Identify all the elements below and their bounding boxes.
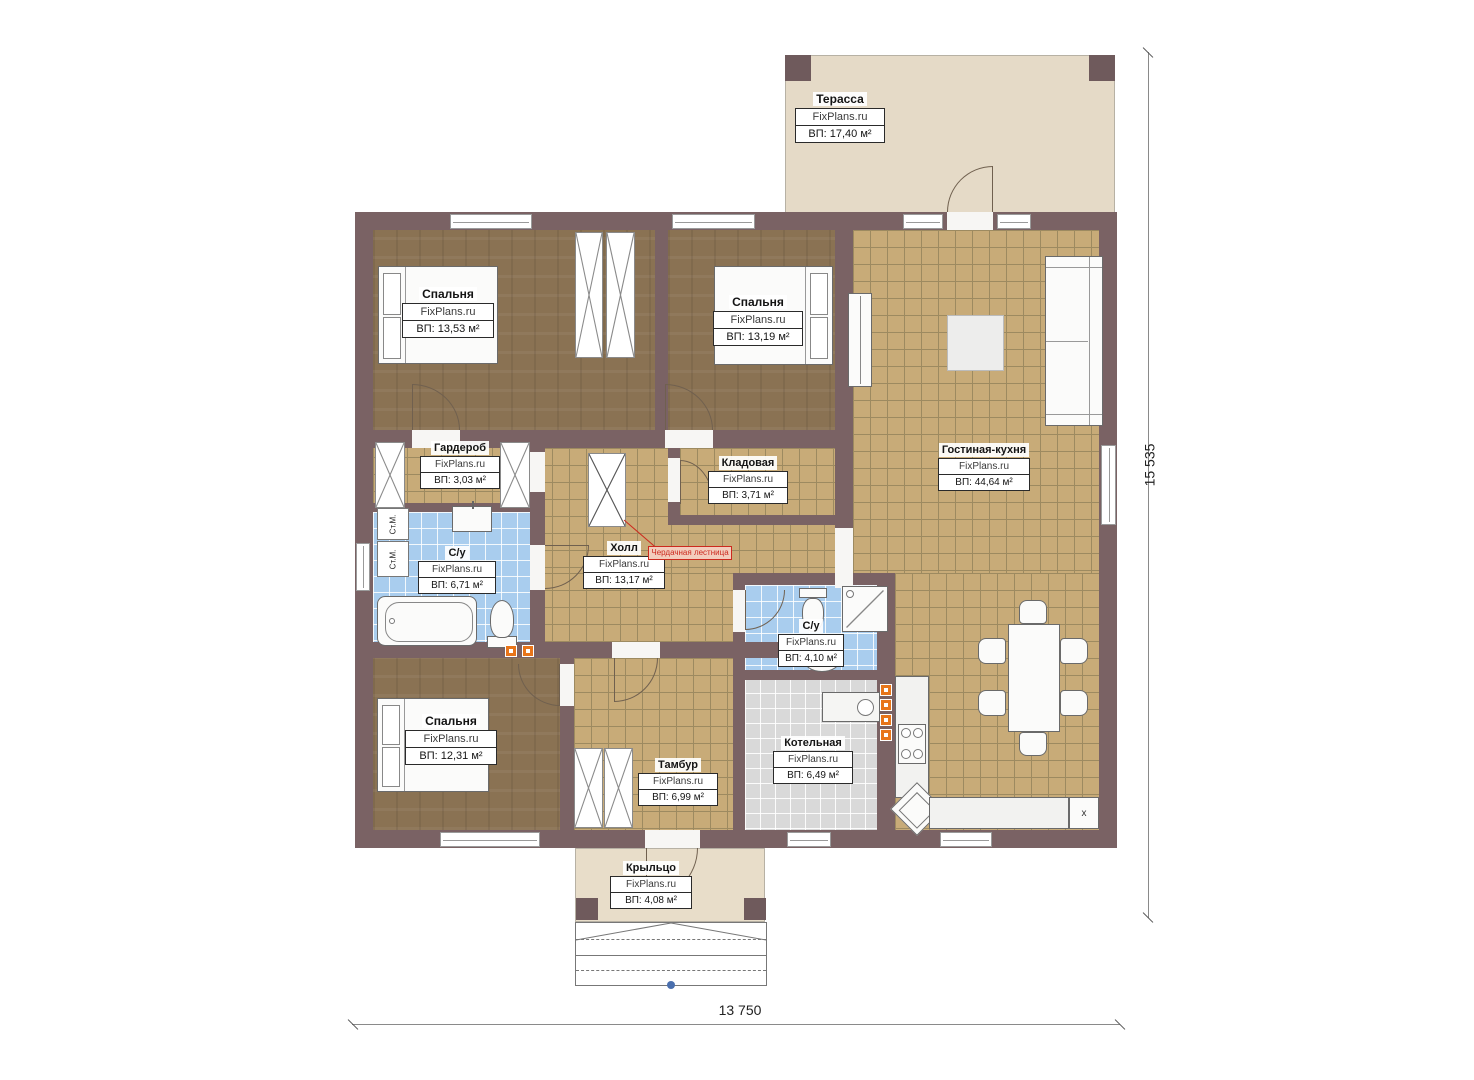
- brand-watermark: FixPlans.ru: [639, 774, 717, 790]
- sofa: [1045, 256, 1103, 426]
- pillow: [382, 705, 400, 745]
- dining-chair: [1060, 690, 1088, 716]
- opening-bath2-door: [733, 590, 745, 632]
- washing-machine-2: Ст.М.: [377, 541, 409, 577]
- riser-marker: [880, 729, 892, 741]
- brand-watermark: FixPlans.ru: [796, 109, 884, 126]
- attic-ladder-shaft: [588, 453, 626, 527]
- room-name: С/у: [445, 546, 468, 560]
- closet-bedroom1-a: [575, 232, 603, 358]
- room-name: Спальня: [729, 295, 787, 309]
- step-line: [576, 955, 766, 956]
- brand-watermark: FixPlans.ru: [714, 312, 802, 329]
- washer-label: Ст.М.: [388, 514, 397, 534]
- room-label-bath1: С/у FixPlans.ru ВП: 6,71 м²: [418, 543, 496, 594]
- closet-bedroom1-b: [606, 232, 635, 358]
- brand-watermark: FixPlans.ru: [406, 731, 496, 748]
- sink-bath1: [452, 506, 492, 532]
- opening-hall-living: [835, 528, 853, 588]
- brand-watermark: FixPlans.ru: [611, 877, 691, 893]
- room-area: ВП: 6,99 м²: [639, 790, 717, 805]
- opening-bath1-door: [530, 545, 545, 590]
- room-name: Гостиная-кухня: [939, 443, 1029, 457]
- window-bedroom3: [440, 832, 540, 847]
- room-name: Холл: [607, 541, 641, 555]
- floor-plan: x Ст.М. Ст.М. Чердачная лестница Тер: [0, 0, 1474, 1080]
- room-area: ВП: 3,03 м²: [421, 473, 499, 488]
- room-area: ВП: 6,49 м²: [774, 768, 852, 783]
- boiler-circle: [857, 699, 874, 716]
- dimension-height-label: 15 535: [1104, 420, 1194, 510]
- room-info-box: FixPlans.ru ВП: 4,10 м²: [778, 634, 844, 667]
- room-area: ВП: 3,71 м²: [709, 488, 787, 503]
- room-label-porch: Крыльцо FixPlans.ru ВП: 4,08 м²: [610, 858, 692, 909]
- pillow: [382, 747, 400, 787]
- room-info-box: FixPlans.ru ВП: 17,40 м²: [795, 108, 885, 143]
- room-area: ВП: 12,31 м²: [406, 748, 496, 764]
- room-info-box: FixPlans.ru ВП: 13,53 м²: [402, 303, 494, 338]
- room-area: ВП: 17,40 м²: [796, 126, 884, 142]
- boiler-unit: [822, 692, 880, 722]
- room-info-box: FixPlans.ru ВП: 6,99 м²: [638, 773, 718, 806]
- room-label-tambour: Тамбур FixPlans.ru ВП: 6,99 м²: [638, 755, 718, 806]
- burner: [901, 728, 911, 738]
- brand-watermark: FixPlans.ru: [419, 562, 495, 578]
- burner: [901, 749, 911, 759]
- toilet-bath2-tank: [799, 588, 827, 598]
- dining-chair: [1060, 638, 1088, 664]
- riser-marker: [505, 645, 517, 657]
- dimension-width-label: 13 750: [695, 1002, 785, 1018]
- burner: [913, 749, 923, 759]
- window-kitchen: [940, 832, 992, 847]
- pillow: [810, 273, 828, 315]
- radiator-line: [860, 296, 861, 384]
- room-info-box: FixPlans.ru ВП: 44,64 м²: [938, 458, 1030, 491]
- burner: [913, 728, 923, 738]
- riser-marker: [880, 714, 892, 726]
- step-line: [576, 939, 766, 940]
- coffee-table: [947, 315, 1004, 371]
- sofa-seat-line: [1046, 341, 1088, 342]
- sofa-armrest: [1046, 414, 1102, 415]
- blanket-line: [805, 267, 806, 364]
- room-info-box: FixPlans.ru ВП: 6,49 м²: [773, 751, 853, 784]
- room-info-box: FixPlans.ru ВП: 3,03 м²: [420, 456, 500, 489]
- opening-front-door: [645, 830, 700, 848]
- step-line: [576, 970, 766, 971]
- room-label-boiler: Котельная FixPlans.ru ВП: 6,49 м²: [773, 733, 853, 784]
- opening-bedroom3-door: [560, 664, 574, 706]
- opening-wardrobe-door: [530, 452, 545, 492]
- brand-watermark: FixPlans.ru: [709, 472, 787, 488]
- bathtub: [377, 596, 477, 646]
- toilet-bath1-bowl: [490, 600, 514, 638]
- room-area: ВП: 4,10 м²: [779, 651, 843, 666]
- brand-watermark: FixPlans.ru: [403, 304, 493, 321]
- window-bedroom1: [450, 214, 532, 229]
- stove: [898, 724, 926, 764]
- porch-column: [576, 898, 598, 920]
- window-bedroom2: [672, 214, 755, 229]
- window-living-top-left: [903, 214, 943, 229]
- room-name: Крыльцо: [623, 861, 679, 875]
- room-area: ВП: 13,53 м²: [403, 321, 493, 337]
- steps-node-dot: [667, 981, 675, 989]
- brand-watermark: FixPlans.ru: [939, 459, 1029, 475]
- room-name: Кладовая: [719, 456, 778, 470]
- porch-column: [744, 898, 766, 920]
- brand-watermark: FixPlans.ru: [774, 752, 852, 768]
- brand-watermark: FixPlans.ru: [779, 635, 843, 651]
- terrace-column: [1089, 55, 1115, 81]
- room-area: ВП: 6,71 м²: [419, 578, 495, 593]
- room-label-bath2: С/у FixPlans.ru ВП: 4,10 м²: [778, 616, 844, 667]
- window-bath1: [356, 543, 370, 591]
- room-label-living: Гостиная-кухня FixPlans.ru ВП: 44,64 м²: [938, 440, 1030, 491]
- room-info-box: FixPlans.ru ВП: 13,17 м²: [583, 556, 665, 589]
- closet-tambour-b: [604, 748, 633, 828]
- room-area: ВП: 44,64 м²: [939, 475, 1029, 490]
- room-name: Терасса: [813, 92, 867, 106]
- riser-marker: [522, 645, 534, 657]
- wall-bath2-boiler: [745, 670, 877, 680]
- pillow: [383, 317, 401, 359]
- brand-watermark: FixPlans.ru: [421, 457, 499, 473]
- dining-table: [1008, 624, 1060, 732]
- pillow: [810, 317, 828, 359]
- wall-bath2-top: [733, 573, 895, 585]
- room-label-pantry: Кладовая FixPlans.ru ВП: 3,71 м²: [708, 453, 788, 504]
- dining-chair: [978, 638, 1006, 664]
- closet-tambour-a: [574, 748, 603, 828]
- room-label-bedroom3: Спальня FixPlans.ru ВП: 12,31 м²: [405, 712, 497, 765]
- sofa-armrest: [1046, 267, 1102, 268]
- room-label-terrace: Терасса FixPlans.ru ВП: 17,40 м²: [795, 90, 885, 143]
- opening-pantry-door: [668, 458, 680, 502]
- room-area: ВП: 13,19 м²: [714, 329, 802, 345]
- attic-ladder-tag: Чердачная лестница: [648, 546, 732, 560]
- room-name: Тамбур: [655, 758, 701, 772]
- kitchen-counter-bottom: [929, 797, 1069, 829]
- washing-machine-1: Ст.М.: [377, 508, 409, 540]
- room-info-box: FixPlans.ru ВП: 6,71 м²: [418, 561, 496, 594]
- room-name: Котельная: [781, 736, 845, 750]
- room-name: С/у: [799, 619, 822, 633]
- closet-wardrobe-left: [375, 442, 405, 508]
- window-living-top-right: [997, 214, 1031, 229]
- closet-wardrobe-right: [500, 442, 530, 508]
- bathtub-basin: [385, 602, 473, 642]
- room-area: ВП: 13,17 м²: [584, 573, 664, 588]
- fridge-label: x: [1082, 808, 1087, 819]
- shower-head: [846, 590, 854, 598]
- terrace-column: [785, 55, 811, 81]
- radiator-living: [848, 293, 872, 387]
- dining-chair: [1019, 732, 1047, 756]
- room-info-box: FixPlans.ru ВП: 12,31 м²: [405, 730, 497, 765]
- room-name: Спальня: [422, 714, 480, 728]
- room-area: ВП: 4,08 м²: [611, 893, 691, 908]
- wall-pantry-bottom: [668, 515, 835, 525]
- pillow: [383, 273, 401, 315]
- opening-terrace-door: [947, 212, 993, 230]
- room-info-box: FixPlans.ru ВП: 3,71 м²: [708, 471, 788, 504]
- room-label-bedroom1: Спальня FixPlans.ru ВП: 13,53 м²: [402, 285, 494, 338]
- opening-hall-tambour: [612, 642, 660, 658]
- entrance-steps: [575, 922, 767, 986]
- tap: [472, 501, 474, 509]
- room-label-wardrobe: Гардероб FixPlans.ru ВП: 3,03 м²: [420, 438, 500, 489]
- washer-label: Ст.М.: [388, 549, 397, 569]
- wall-tambour-boiler: [733, 680, 745, 830]
- wall-left: [355, 212, 373, 848]
- opening-bedroom2-door: [665, 430, 713, 448]
- room-name: Гардероб: [431, 441, 489, 455]
- dining-chair: [978, 690, 1006, 716]
- room-info-box: FixPlans.ru ВП: 4,08 м²: [610, 876, 692, 909]
- shower: [842, 586, 888, 632]
- dining-chair: [1019, 600, 1047, 624]
- sofa-back-line: [1089, 257, 1090, 425]
- riser-marker: [880, 699, 892, 711]
- window-boiler: [787, 832, 831, 847]
- bathtub-drain: [389, 618, 395, 624]
- room-info-box: FixPlans.ru ВП: 13,19 м²: [713, 311, 803, 346]
- dimension-line-bottom: [352, 1024, 1120, 1025]
- room-label-bedroom2: Спальня FixPlans.ru ВП: 13,19 м²: [713, 293, 803, 346]
- room-name: Спальня: [419, 287, 477, 301]
- wall-hall-living: [835, 230, 853, 575]
- fridge: x: [1069, 797, 1099, 829]
- riser-marker: [880, 684, 892, 696]
- window-living-right: [1101, 445, 1116, 525]
